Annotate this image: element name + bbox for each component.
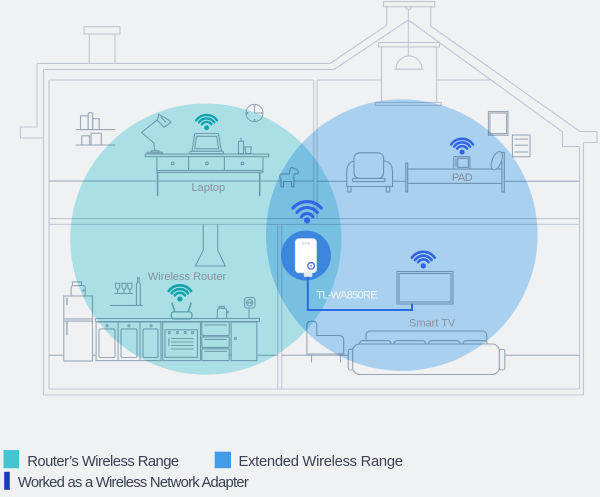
svg-text:Smart TV: Smart TV xyxy=(409,318,456,330)
svg-text:Laptop: Laptop xyxy=(191,182,225,194)
svg-text:Router’s Wireless Range: Router’s Wireless Range xyxy=(27,454,179,470)
svg-text:tp-link: tp-link xyxy=(302,242,311,246)
svg-text:Worked as a Wireless Network A: Worked as a Wireless Network Adapter xyxy=(18,475,249,491)
svg-text:Extended Wireless Range: Extended Wireless Range xyxy=(239,454,403,470)
svg-text:PAD: PAD xyxy=(452,172,473,184)
svg-text:TL-WA850RE: TL-WA850RE xyxy=(316,289,377,301)
svg-text:Wireless Router: Wireless Router xyxy=(148,271,227,283)
